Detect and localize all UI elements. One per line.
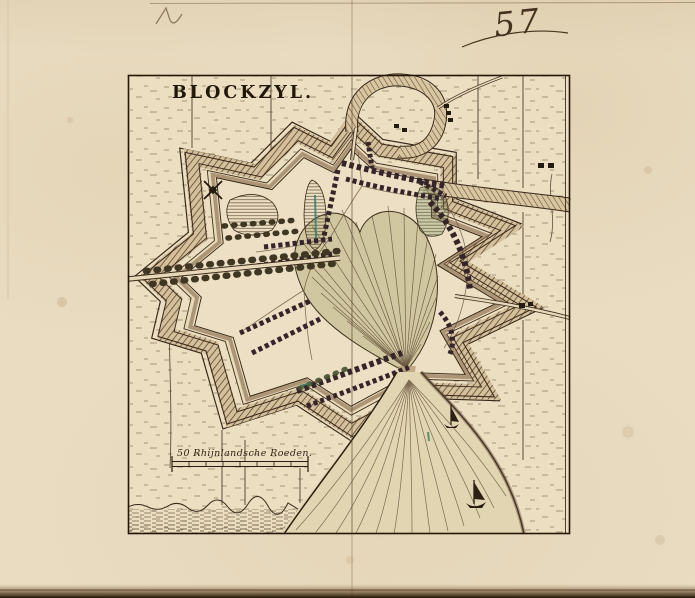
map-engraving: [0, 0, 695, 598]
engraved-map-page: BLOCKZYL. 50 Rhijnlandsche Roeden. 57: [0, 0, 695, 598]
teal-accent: [315, 195, 316, 240]
scale-bar-label: 50 Rhijnlandsche Roeden.: [177, 448, 312, 459]
folio-number: 57: [492, 1, 544, 45]
ink-squiggle: [156, 8, 182, 24]
map-title: BLOCKZYL.: [172, 83, 314, 103]
